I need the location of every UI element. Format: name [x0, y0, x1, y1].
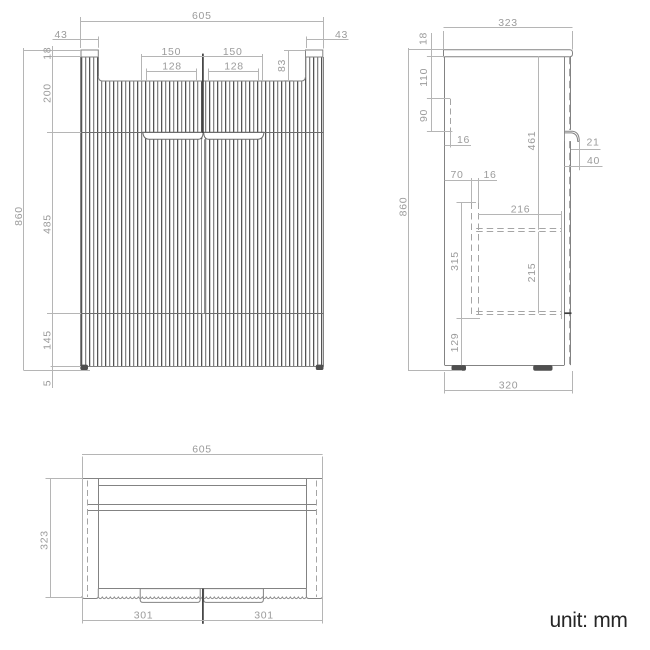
svg-text:860: 860: [397, 197, 409, 217]
svg-text:unit: mm: unit: mm: [550, 609, 628, 632]
svg-text:216: 216: [511, 204, 531, 216]
svg-text:860: 860: [13, 206, 25, 226]
svg-text:461: 461: [526, 131, 538, 151]
svg-text:18: 18: [41, 47, 53, 60]
svg-text:40: 40: [587, 155, 600, 167]
svg-text:320: 320: [499, 380, 519, 392]
svg-text:90: 90: [418, 109, 430, 122]
svg-text:43: 43: [335, 29, 348, 41]
svg-text:605: 605: [192, 443, 212, 455]
svg-text:43: 43: [54, 29, 67, 41]
svg-text:323: 323: [38, 530, 50, 550]
svg-text:301: 301: [134, 609, 154, 621]
svg-text:5: 5: [42, 380, 54, 387]
svg-text:21: 21: [586, 136, 599, 148]
svg-text:18: 18: [418, 32, 430, 45]
svg-text:129: 129: [449, 333, 461, 353]
svg-text:145: 145: [42, 330, 54, 350]
svg-text:110: 110: [418, 68, 430, 87]
svg-text:150: 150: [161, 46, 181, 58]
svg-text:83: 83: [276, 59, 288, 72]
svg-text:200: 200: [42, 83, 54, 103]
svg-text:485: 485: [42, 214, 54, 234]
svg-text:128: 128: [224, 60, 244, 72]
svg-text:16: 16: [457, 134, 470, 146]
svg-text:215: 215: [526, 263, 538, 283]
svg-text:70: 70: [450, 169, 463, 181]
svg-text:150: 150: [223, 46, 243, 58]
svg-text:323: 323: [498, 17, 518, 29]
svg-text:128: 128: [162, 60, 182, 72]
svg-text:16: 16: [483, 169, 496, 181]
svg-text:605: 605: [192, 10, 212, 22]
svg-text:301: 301: [254, 609, 274, 621]
svg-text:315: 315: [449, 251, 461, 271]
